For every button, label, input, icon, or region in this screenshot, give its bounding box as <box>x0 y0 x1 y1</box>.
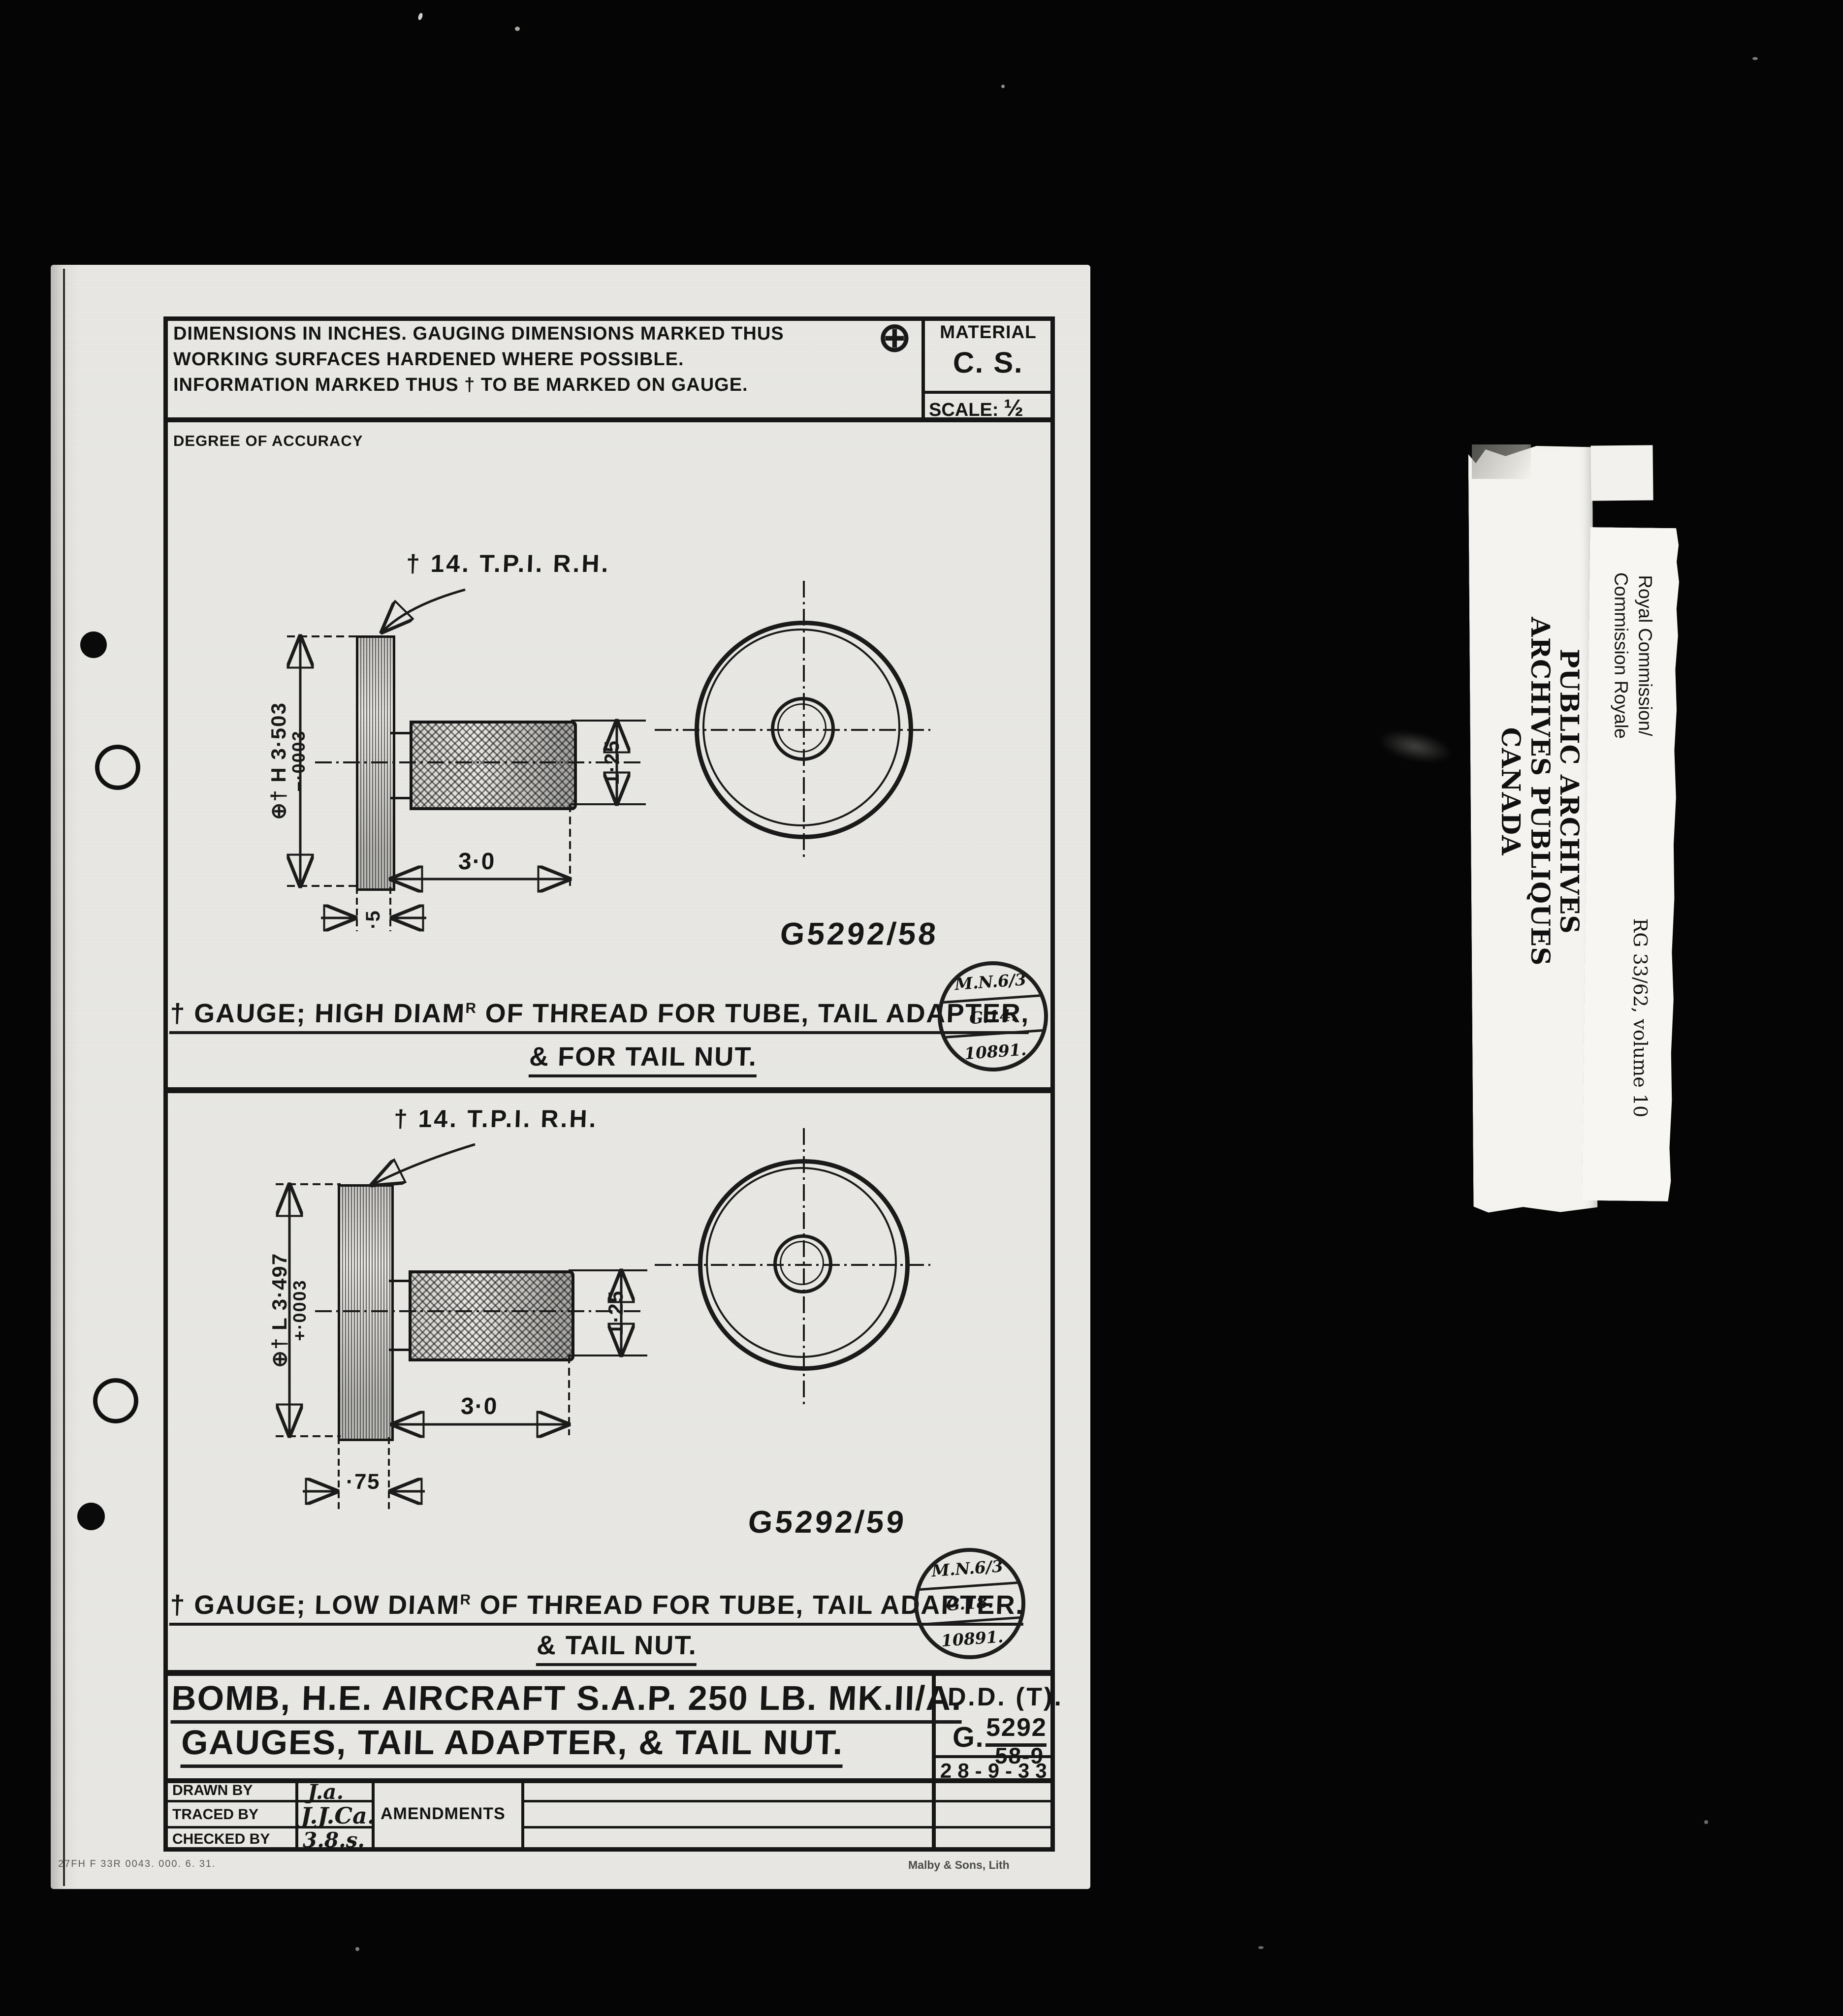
stamp2-line1: M.N.6/3 <box>915 1555 1019 1582</box>
printer-credit: Malby & Sons, Lith <box>908 1858 1010 1872</box>
gauge2-part-no: G5292/59 <box>747 1504 908 1540</box>
gauge2-thickness-dim: ·75 <box>346 1470 381 1494</box>
film-speck <box>417 12 423 21</box>
header-note-3: INFORMATION MARKED THUS † TO BE MARKED O… <box>173 372 892 398</box>
page-edge-line <box>63 269 65 1886</box>
gauge1-thickness-dim: ·5 <box>363 910 383 929</box>
gauge2-length-dim: 3·0 <box>460 1393 498 1420</box>
archives-sticker-text: PUBLIC ARCHIVES ARCHIVES PUBLIQUES CANAD… <box>1496 617 1584 966</box>
film-speck <box>1752 57 1758 60</box>
material-scale-divider <box>921 391 1055 394</box>
gauge1-approval-stamp: M.N.6/3 G.14. 10891. <box>934 957 1051 1075</box>
drawing-sheet: DIMENSIONS IN INCHES. GAUGING DIMENSIONS… <box>51 265 1090 1889</box>
drawn-by-signature: J.a. <box>308 1780 344 1804</box>
gauge1-length-dim: 3·0 <box>458 848 496 875</box>
material-label: MATERIAL <box>921 322 1055 343</box>
gauge2-approval-stamp: M.N.6/3 G.18. 10891. <box>910 1544 1029 1663</box>
material-value: C. S. <box>921 346 1055 379</box>
film-speck <box>1704 1820 1708 1824</box>
punch-hole-ring-bottom <box>93 1378 138 1423</box>
gauge2-diameter-dim: ⊕† L 3·497 +·0003 <box>269 1253 309 1368</box>
gauge1-part-no: G5292/58 <box>779 915 940 952</box>
scale-value: ½ <box>1004 395 1023 421</box>
stamp2-line3: 10891. <box>920 1626 1024 1652</box>
sticker-torn-corner <box>1472 444 1531 479</box>
section-divider <box>163 1087 1055 1093</box>
table-row-line-right-2 <box>521 1826 1055 1828</box>
header-note-2: WORKING SURFACES HARDENED WHERE POSSIBLE… <box>173 346 892 372</box>
stamp2-divider2 <box>915 1616 1028 1626</box>
film-speck <box>355 1947 359 1951</box>
header-note-1: DIMENSIONS IN INCHES. GAUGING DIMENSIONS… <box>173 321 892 346</box>
punch-hole-filled-top <box>80 631 107 658</box>
gauge2-neck <box>389 1280 409 1351</box>
gauge2-front-hole-ring <box>780 1241 824 1285</box>
amendments-label: AMENDMENTS <box>381 1804 506 1824</box>
punch-hole-ring-top <box>95 745 140 790</box>
title-block-top-line <box>163 1670 1055 1676</box>
title-line1: BOMB, H.E. AIRCRAFT S.A.P. 250 LB. MK.II… <box>170 1678 963 1724</box>
film-speck <box>515 27 520 31</box>
date-row-top-line <box>932 1755 1055 1758</box>
sticker-line3: CANADA <box>1496 617 1525 966</box>
gauge1-handle-dia-dim: 1·25 <box>601 740 623 785</box>
stamp2-line2: G.18. <box>918 1590 1022 1617</box>
stamp1-divider2 <box>938 1029 1050 1039</box>
stamp1-line3: 10891. <box>944 1038 1047 1064</box>
sticker-line1: PUBLIC ARCHIVES <box>1555 617 1584 966</box>
film-speck <box>1001 85 1005 88</box>
gauge2-caption-line2: & TAIL NUT. <box>536 1630 698 1666</box>
dept-ref: D.D. (T). <box>947 1682 1064 1712</box>
drawn-by-label: DRAWN BY <box>172 1782 253 1799</box>
gauge1-thread-note: † 14. T.P.I. R.H. <box>406 549 610 578</box>
gauge1-diameter-dim: ⊕† H 3·503 −·0003 <box>268 702 308 820</box>
punch-hole-filled-bottom <box>77 1503 105 1530</box>
title-line2: GAUGES, TAIL ADAPTER, & TAIL NUT. <box>180 1723 844 1768</box>
card-reference: RG 33/62, volume 10 <box>1629 918 1651 1118</box>
checked-by-label: CHECKED BY <box>172 1831 270 1848</box>
card-commission-text: Royal Commission/ Commission Royale <box>1608 572 1657 739</box>
print-code: 27FH F 33R 0043. 000. 6. 31. <box>58 1858 216 1870</box>
table-row-line-right-1 <box>521 1800 1055 1802</box>
traced-by-label: TRACED BY <box>172 1806 258 1823</box>
card-line1: Royal Commission/ <box>1632 572 1656 739</box>
scale-row: SCALE: ½ <box>929 395 1023 422</box>
scale-label: SCALE: <box>929 400 998 420</box>
gauge2-disc <box>338 1184 394 1441</box>
gauge1-neck <box>390 732 410 799</box>
film-smudge <box>1376 725 1455 768</box>
accuracy-label: DEGREE OF ACCURACY <box>173 432 363 450</box>
table-col-line-3 <box>521 1778 524 1852</box>
gauge1-caption-line2: & FOR TAIL NUT. <box>529 1041 758 1077</box>
checked-by-signature: 3.8.s. <box>303 1828 365 1852</box>
gauge1-handle <box>410 721 577 810</box>
gauge2-thread-note: † 14. T.P.I. R.H. <box>393 1104 598 1133</box>
card-line2: Commission Royale <box>1608 572 1632 739</box>
gauge1-caption: † GAUGE; HIGH DIAMR OF THREAD FOR TUBE, … <box>169 998 1030 1034</box>
gauge1-disc <box>356 635 395 891</box>
drawing-ref-prefix: G. <box>952 1721 985 1754</box>
gauging-mark-icon: ⊕ <box>878 314 912 361</box>
gauge2-handle-dia-dim: 1·25 <box>605 1290 627 1335</box>
gauge1-front-hole-ring <box>777 703 826 753</box>
gauge2-handle <box>409 1270 574 1361</box>
traced-by-signature: J.J.Ca. <box>301 1802 375 1829</box>
table-col-line-1 <box>295 1778 298 1852</box>
archives-sticker-top-band <box>1590 445 1653 501</box>
stamp1-line1: M.N.6/3 <box>939 968 1042 994</box>
stamp1-divider1 <box>936 994 1048 1004</box>
frame-right <box>1050 316 1055 1852</box>
stamp2-divider1 <box>912 1581 1025 1591</box>
drawing-ref-numerator: 5292 <box>985 1713 1048 1747</box>
gauge2-caption: † GAUGE; LOW DIAMR OF THREAD FOR TUBE, T… <box>169 1590 1025 1626</box>
film-speck <box>1258 1946 1264 1949</box>
stamp1-line2: G.14. <box>941 1003 1045 1029</box>
frame-left <box>163 316 168 1852</box>
sticker-line2: ARCHIVES PUBLIQUES <box>1525 617 1554 966</box>
